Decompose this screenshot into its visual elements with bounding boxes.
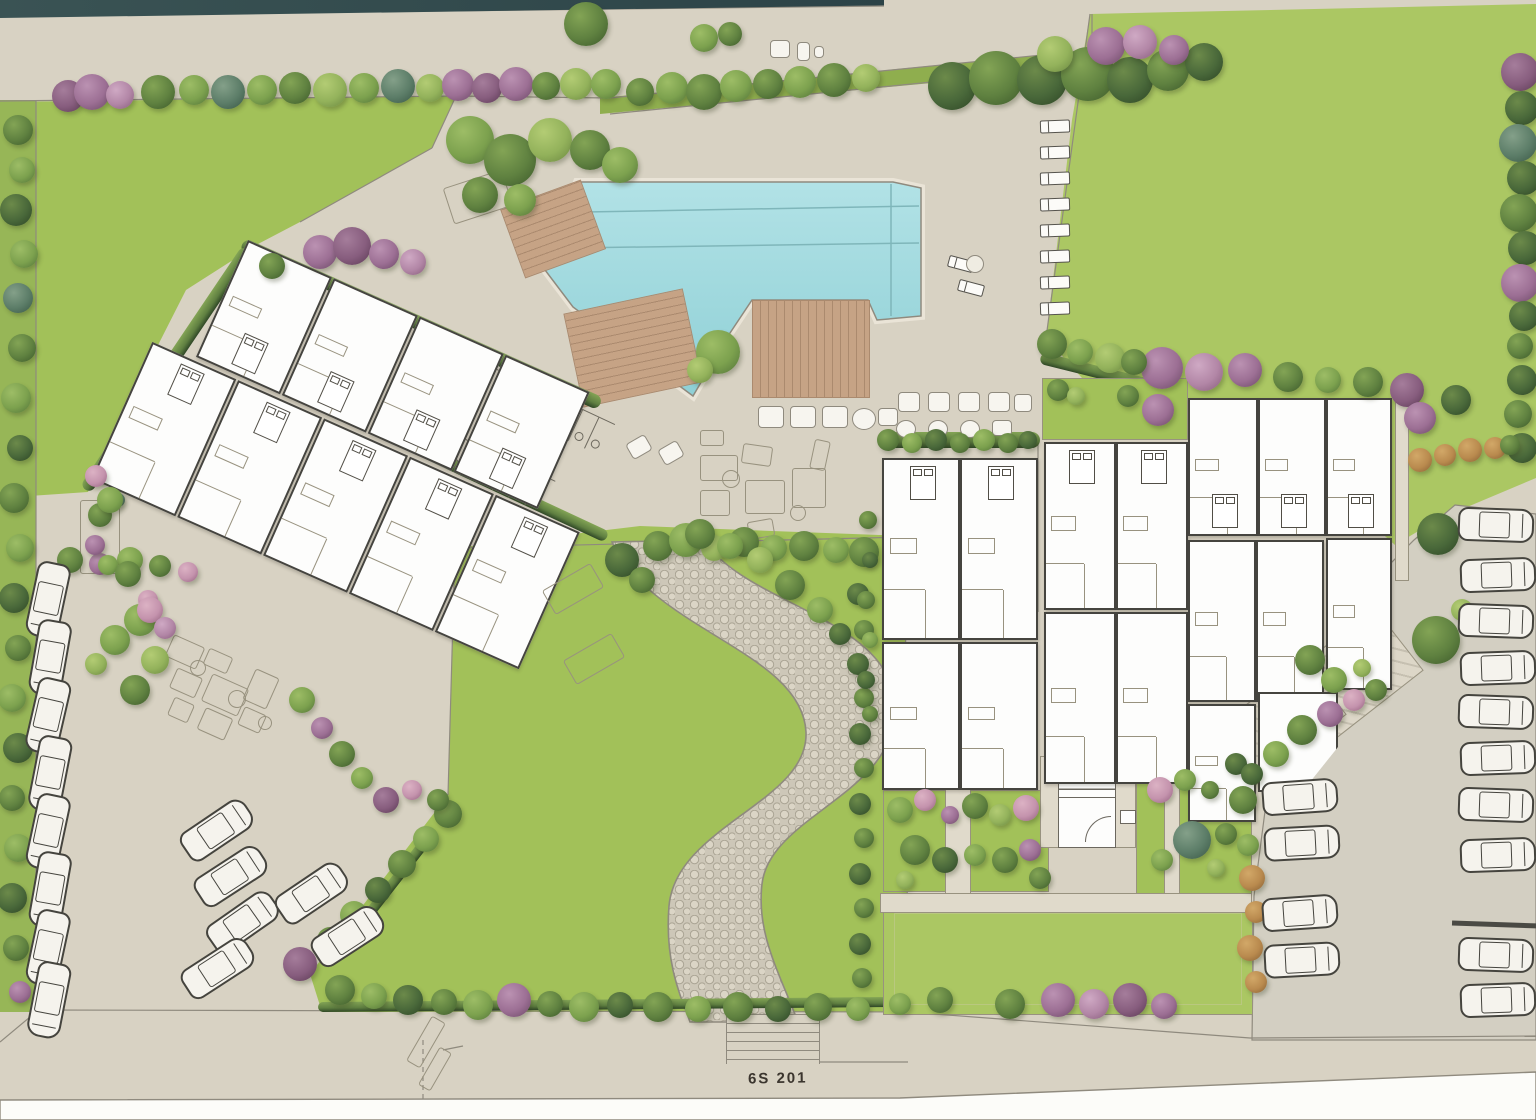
tree-bush xyxy=(964,844,986,866)
tree-bush xyxy=(969,51,1023,105)
car-cabin xyxy=(35,871,65,907)
tree-bush xyxy=(1434,444,1456,466)
tree-bush xyxy=(629,567,655,593)
car-cabin xyxy=(32,696,64,733)
parked-car xyxy=(1263,941,1341,979)
furniture-sketch xyxy=(792,468,826,508)
flowering-tree xyxy=(333,227,371,265)
parked-car xyxy=(1459,557,1536,594)
tree-bush xyxy=(325,975,355,1005)
bed-pillow xyxy=(1284,497,1293,504)
car-rear-line xyxy=(1523,842,1525,866)
patio-furniture xyxy=(770,40,790,58)
lounger-pillow-line xyxy=(1048,121,1049,132)
parked-car xyxy=(1457,787,1534,824)
flowering-tree xyxy=(1113,983,1147,1017)
bed-pillow xyxy=(190,372,201,382)
car-cabin xyxy=(1480,842,1513,868)
patio-furniture xyxy=(898,392,920,412)
tree-bush xyxy=(823,537,849,563)
car-rear-line xyxy=(1325,899,1328,923)
apartment-unit xyxy=(1188,540,1256,702)
car-cabin xyxy=(1282,899,1315,926)
tree-bush xyxy=(973,429,995,451)
bed-icon xyxy=(425,478,463,520)
patio-furniture xyxy=(928,392,950,412)
kitchen-counter xyxy=(1195,756,1218,766)
tree-bush xyxy=(381,69,415,103)
flowering-tree xyxy=(9,981,31,1003)
parked-car xyxy=(1457,603,1534,640)
tree-bush xyxy=(1315,367,1341,393)
car-cabin xyxy=(1284,830,1317,857)
tree-bush xyxy=(97,487,123,513)
car-rear-line xyxy=(257,897,272,917)
patio-furniture xyxy=(814,46,824,58)
interior-wall xyxy=(311,538,328,574)
tree-bush xyxy=(854,828,874,848)
tree-bush xyxy=(1245,971,1267,993)
kitchen-counter xyxy=(400,372,433,395)
flowering-tree xyxy=(1142,394,1174,426)
tree-bush xyxy=(1207,859,1225,877)
tree-bush xyxy=(141,75,175,109)
bed-pillow xyxy=(924,469,933,476)
kitchen-counter xyxy=(472,559,506,584)
pool-wood-deck xyxy=(752,300,870,398)
interior-wall xyxy=(962,589,1003,590)
apartment-unit xyxy=(1116,612,1188,784)
tree-bush xyxy=(765,996,791,1022)
tree-bush xyxy=(1273,362,1303,392)
lounger-pillow-line xyxy=(1048,303,1049,314)
apartment-unit xyxy=(882,458,960,640)
kitchen-counter xyxy=(315,334,348,357)
bed-pillow xyxy=(340,379,351,389)
flowering-tree xyxy=(178,562,198,582)
interior-wall xyxy=(1003,749,1004,788)
tree-bush xyxy=(927,987,953,1013)
tree-bush xyxy=(1353,367,1383,397)
tree-bush xyxy=(8,334,36,362)
tree-bush xyxy=(1509,301,1536,331)
patio-furniture xyxy=(790,406,816,428)
flowering-tree xyxy=(85,465,107,487)
bed-pillow xyxy=(1351,497,1360,504)
tree-bush xyxy=(925,429,947,451)
interior-wall xyxy=(884,748,925,749)
flowering-tree xyxy=(1087,27,1125,65)
interior-wall xyxy=(397,577,414,613)
car-cabin xyxy=(1480,745,1513,771)
interior-wall xyxy=(884,589,925,590)
bed-icon xyxy=(511,516,549,558)
elevator-icon xyxy=(1120,810,1136,824)
flowering-tree xyxy=(400,249,426,275)
bed-icon xyxy=(403,409,441,451)
car-rear-line xyxy=(1521,610,1523,634)
tree-bush xyxy=(789,531,819,561)
tree-bush xyxy=(656,72,688,104)
tree-bush xyxy=(431,989,457,1015)
tree-bush xyxy=(329,741,355,767)
apartment-unit xyxy=(1044,442,1116,610)
kitchen-counter xyxy=(1333,605,1355,618)
flowering-tree xyxy=(369,239,399,269)
flowering-tree xyxy=(914,789,936,811)
tree-bush xyxy=(1458,438,1482,462)
parked-car xyxy=(1261,893,1339,932)
tree-bush xyxy=(852,968,872,988)
tree-bush xyxy=(902,433,922,453)
flowering-tree xyxy=(941,806,959,824)
tree-bush xyxy=(0,483,29,513)
flowering-tree xyxy=(1185,353,1223,391)
bed-icon xyxy=(1212,494,1238,528)
interior-wall xyxy=(1118,736,1156,737)
bed-pillow xyxy=(361,448,372,458)
tree-bush xyxy=(504,184,536,216)
car-rear-line xyxy=(1327,947,1329,971)
tree-bush xyxy=(1417,513,1459,555)
lounger-pillow-line xyxy=(954,258,958,268)
apartment-unit xyxy=(1044,612,1116,784)
tree-bush xyxy=(784,66,816,98)
interior-wall xyxy=(482,615,499,651)
bed-icon xyxy=(910,466,936,500)
flowering-tree xyxy=(303,235,337,269)
tree-bush xyxy=(685,519,715,549)
kitchen-counter xyxy=(386,521,420,546)
bed-pillow xyxy=(1155,453,1164,460)
tree-bush xyxy=(854,898,874,918)
tree-bush xyxy=(279,72,311,104)
lounger-pillow-line xyxy=(1048,147,1049,158)
tree-bush xyxy=(1441,385,1471,415)
tree-bush xyxy=(141,646,169,674)
flowering-tree xyxy=(373,787,399,813)
bed-pillow xyxy=(1072,453,1081,460)
tree-bush xyxy=(179,75,209,105)
flowering-tree xyxy=(1404,402,1436,434)
tree-bush xyxy=(1174,769,1196,791)
tree-bush xyxy=(388,850,416,878)
sun-lounger xyxy=(1040,275,1070,289)
patio-furniture xyxy=(958,392,980,412)
tree-bush xyxy=(1121,349,1147,375)
bed-icon xyxy=(988,466,1014,500)
tree-bush xyxy=(115,561,141,587)
tree-bush xyxy=(3,283,33,313)
car-rear-line xyxy=(1327,830,1329,854)
kitchen-counter xyxy=(1265,459,1288,471)
tree-bush xyxy=(1107,57,1153,103)
tree-bush xyxy=(1295,645,1325,675)
apartment-unit xyxy=(1256,540,1324,702)
interior-wall xyxy=(1084,737,1085,782)
car-cabin xyxy=(1478,512,1511,538)
tree-bush xyxy=(247,75,277,105)
kitchen-counter xyxy=(890,538,917,554)
tree-bush xyxy=(723,992,753,1022)
tree-bush xyxy=(1241,763,1263,785)
apartment-unit xyxy=(882,642,960,790)
tree-bush xyxy=(857,671,875,689)
furniture-sketch xyxy=(790,505,806,521)
flowering-tree xyxy=(1147,777,1173,803)
tree-bush xyxy=(775,570,805,600)
tree-bush xyxy=(120,675,150,705)
kitchen-counter xyxy=(300,483,334,508)
stairs-curve xyxy=(1085,816,1111,842)
car-rear-line xyxy=(1521,514,1523,538)
interior-wall xyxy=(1328,647,1363,648)
tree-bush xyxy=(862,706,878,722)
apartment-unit xyxy=(1258,398,1326,536)
parasol-icon xyxy=(966,255,984,273)
bed-pillow xyxy=(180,367,191,377)
bed-icon xyxy=(253,402,291,444)
parked-car xyxy=(1459,837,1536,874)
flowering-tree xyxy=(154,617,176,639)
tree-bush xyxy=(0,785,25,811)
tree-bush xyxy=(685,996,711,1022)
tree-bush xyxy=(718,22,742,46)
tree-bush xyxy=(6,534,34,562)
car-rear-line xyxy=(1523,745,1525,769)
tree-bush xyxy=(427,789,449,811)
tree-bush xyxy=(1067,387,1085,405)
interior-wall xyxy=(925,749,926,788)
tree-bush xyxy=(849,863,871,885)
kitchen-counter xyxy=(890,707,917,720)
flowering-tree xyxy=(1228,353,1262,387)
bed-pillow xyxy=(330,375,341,385)
tree-bush xyxy=(747,547,773,573)
tree-bush xyxy=(804,993,832,1021)
car-rear-line xyxy=(232,805,246,825)
car-cabin xyxy=(1478,608,1511,634)
tree-bush xyxy=(1507,365,1536,395)
furniture-sketch xyxy=(745,480,785,514)
interior-wall xyxy=(139,462,156,498)
flowering-tree xyxy=(402,780,422,800)
bed-pillow xyxy=(1226,497,1235,504)
bed-pillow xyxy=(351,444,362,454)
patio-furniture xyxy=(878,408,898,426)
bed-pillow xyxy=(1144,453,1153,460)
tree-bush xyxy=(690,24,718,52)
tree-bush xyxy=(928,62,976,110)
tree-bush xyxy=(1029,867,1051,889)
tree-bush xyxy=(753,69,783,99)
tree-bush xyxy=(560,68,592,100)
flowering-tree xyxy=(311,717,333,739)
garden-walkway xyxy=(880,893,1252,913)
tree-bush xyxy=(1229,786,1257,814)
tree-bush xyxy=(1019,431,1037,449)
car-cabin xyxy=(33,928,64,964)
tree-bush xyxy=(1067,339,1093,365)
tree-bush xyxy=(829,623,851,645)
patio-furniture xyxy=(822,406,848,428)
interior-wall xyxy=(1046,736,1084,737)
car-cabin xyxy=(1480,562,1513,588)
tree-bush xyxy=(1239,865,1265,891)
tree-bush xyxy=(1201,781,1219,799)
sun-lounger xyxy=(1040,223,1070,237)
apartment-unit xyxy=(1116,442,1188,610)
tree-bush xyxy=(1321,667,1347,693)
bed-pillow xyxy=(991,469,1000,476)
tree-bush xyxy=(887,797,913,823)
kitchen-counter xyxy=(1195,612,1218,626)
tree-bush xyxy=(1365,679,1387,701)
patio-furniture xyxy=(758,406,784,428)
tree-bush xyxy=(365,877,391,903)
tree-bush xyxy=(1508,231,1536,265)
tree-bush xyxy=(889,993,911,1015)
tree-bush xyxy=(896,871,914,889)
tree-bush xyxy=(877,429,899,451)
kitchen-counter xyxy=(1123,516,1147,531)
interior-wall xyxy=(925,590,926,638)
flowering-tree xyxy=(74,74,110,110)
tree-bush xyxy=(950,433,970,453)
tree-bush xyxy=(1037,329,1067,359)
car-rear-line xyxy=(327,868,341,888)
bed-pillow xyxy=(266,406,277,416)
tree-bush xyxy=(537,991,563,1017)
sun-lounger xyxy=(1040,171,1070,185)
kitchen-counter xyxy=(968,538,995,554)
boundary-line xyxy=(908,1012,1250,1038)
kitchen-counter xyxy=(486,410,519,433)
flowering-tree xyxy=(1019,839,1041,861)
interior-wall xyxy=(1003,590,1004,638)
tree-bush xyxy=(607,992,633,1018)
tree-bush xyxy=(1500,194,1536,232)
interior-wall xyxy=(1156,564,1157,608)
flowering-tree xyxy=(1079,989,1109,1019)
car-rear-line xyxy=(1521,944,1523,968)
tree-bush xyxy=(3,935,29,961)
car-cabin xyxy=(35,755,66,791)
flowering-tree xyxy=(1151,993,1177,1019)
tree-bush xyxy=(992,847,1018,873)
car-cabin xyxy=(1478,792,1511,818)
kitchen-counter xyxy=(1051,516,1075,531)
furniture-sketch xyxy=(700,490,730,516)
lounger-pillow-line xyxy=(1048,199,1049,210)
site-label: 6S 201 xyxy=(748,1069,808,1087)
tree-bush xyxy=(1,383,31,413)
tree-bush xyxy=(0,194,32,226)
bike-stall-dot xyxy=(573,430,585,442)
tree-bush xyxy=(1500,435,1520,455)
tree-bush xyxy=(393,985,423,1015)
tree-bush xyxy=(10,240,38,268)
tree-bush xyxy=(1505,91,1536,125)
flowering-tree xyxy=(1159,35,1189,65)
bed-pillow xyxy=(425,418,436,428)
car-rear-line xyxy=(1523,655,1525,679)
bed-pillow xyxy=(244,337,255,347)
parked-car xyxy=(1457,507,1534,544)
interior-wall xyxy=(1258,656,1294,657)
patio-furniture xyxy=(852,408,876,430)
interior-wall xyxy=(282,517,327,538)
interior-wall xyxy=(1226,789,1227,820)
car-rear-line xyxy=(1523,562,1525,586)
tree-bush xyxy=(416,74,444,102)
lounger-pillow-line xyxy=(1048,277,1049,288)
flowering-tree xyxy=(1041,983,1075,1017)
tree-bush xyxy=(932,847,958,873)
tree-bush xyxy=(9,157,35,183)
tree-bush xyxy=(351,767,373,789)
tree-bush xyxy=(5,635,31,661)
kitchen-counter xyxy=(214,444,248,469)
apartment-unit xyxy=(1188,398,1258,536)
tree-bush xyxy=(569,992,599,1022)
tree-bush xyxy=(900,835,930,865)
bed-icon xyxy=(1348,494,1374,528)
tree-bush xyxy=(717,533,743,559)
interior-wall xyxy=(110,441,155,462)
flowering-tree xyxy=(1141,347,1183,389)
interior-wall xyxy=(1084,564,1085,608)
car-rear-line xyxy=(1521,701,1523,725)
furniture-sketch xyxy=(700,430,724,446)
tree-bush xyxy=(1215,823,1237,845)
tree-bush xyxy=(211,75,245,109)
bed-pillow xyxy=(254,341,265,351)
lounger-pillow-line xyxy=(1048,251,1049,262)
tree-bush xyxy=(849,933,871,955)
tree-bush xyxy=(463,990,493,1020)
tree-bush xyxy=(349,73,379,103)
tree-bush xyxy=(564,2,608,46)
sun-lounger xyxy=(1040,145,1070,159)
tree-bush xyxy=(413,826,439,852)
interior-wall xyxy=(1226,657,1227,700)
flowering-tree xyxy=(497,983,531,1017)
bed-pillow xyxy=(1362,497,1371,504)
tree-bush xyxy=(289,687,315,713)
tree-bush xyxy=(462,177,498,213)
bed-pillow xyxy=(1215,497,1224,504)
tree-bush xyxy=(1507,161,1536,195)
parked-car xyxy=(1459,650,1536,687)
tree-bush xyxy=(857,591,875,609)
flowering-tree xyxy=(1343,689,1365,711)
tree-bush xyxy=(720,70,752,102)
parked-car xyxy=(1261,777,1339,816)
kitchen-counter xyxy=(1195,459,1219,471)
car-cabin xyxy=(33,812,64,848)
furniture-sketch xyxy=(722,470,740,488)
tree-bush xyxy=(862,552,878,568)
tree-bush xyxy=(1237,834,1259,856)
bed-pillow xyxy=(447,487,458,497)
car-rear-line xyxy=(363,911,377,932)
tree-bush xyxy=(817,63,851,97)
tree-bush xyxy=(313,73,347,107)
kitchen-counter xyxy=(1263,612,1286,626)
sun-lounger xyxy=(1040,301,1070,315)
flowering-tree xyxy=(499,67,533,101)
